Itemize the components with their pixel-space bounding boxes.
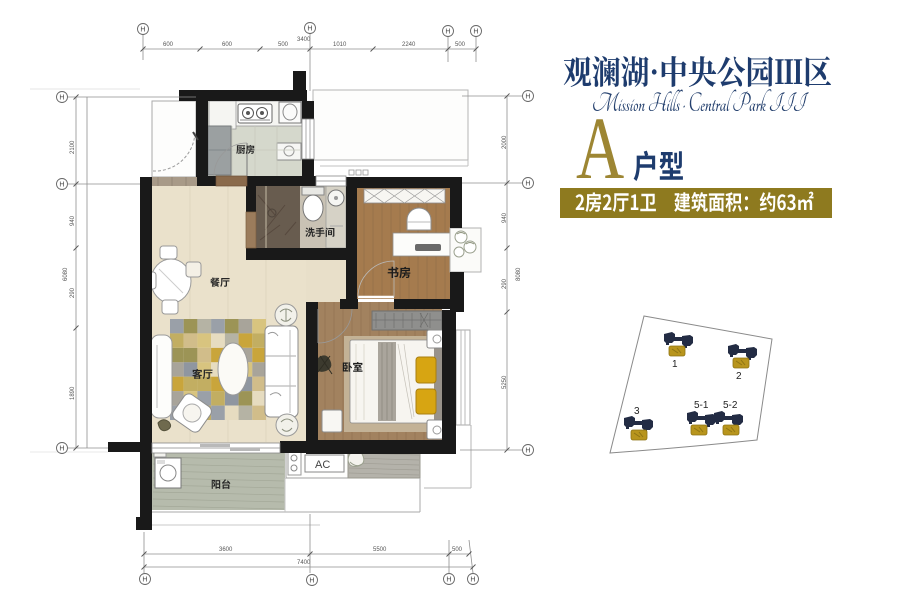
svg-text:1890: 1890 xyxy=(70,386,76,400)
svg-text:3: 3 xyxy=(634,406,640,417)
svg-text:1010: 1010 xyxy=(333,42,347,48)
svg-text:2240: 2240 xyxy=(402,42,416,48)
svg-text:6080: 6080 xyxy=(63,267,69,281)
svg-text:H: H xyxy=(525,93,530,100)
svg-text:7400: 7400 xyxy=(297,560,311,566)
svg-text:290: 290 xyxy=(502,278,508,289)
svg-text:940: 940 xyxy=(70,215,76,226)
svg-text:H: H xyxy=(473,28,478,35)
svg-text:500: 500 xyxy=(278,42,289,48)
svg-text:2100: 2100 xyxy=(70,140,76,154)
svg-text:5-2: 5-2 xyxy=(723,400,738,411)
svg-text:2000: 2000 xyxy=(502,135,508,149)
svg-text:H: H xyxy=(142,576,147,583)
svg-text:H: H xyxy=(59,94,64,101)
svg-text:H: H xyxy=(59,445,64,452)
svg-text:5250: 5250 xyxy=(502,375,508,389)
svg-text:H: H xyxy=(446,576,451,583)
svg-text:H: H xyxy=(307,25,312,32)
svg-text:AC: AC xyxy=(315,459,330,471)
svg-text:8080: 8080 xyxy=(516,267,522,281)
svg-text:H: H xyxy=(59,181,64,188)
svg-text:3400: 3400 xyxy=(297,37,311,43)
svg-text:H: H xyxy=(470,576,475,583)
svg-text:290: 290 xyxy=(70,287,76,298)
svg-text:5-1: 5-1 xyxy=(694,400,709,411)
svg-text:3600: 3600 xyxy=(219,547,233,553)
svg-text:600: 600 xyxy=(222,42,233,48)
svg-text:500: 500 xyxy=(452,547,463,553)
svg-text:H: H xyxy=(309,577,314,584)
svg-text:500: 500 xyxy=(455,42,466,48)
svg-text:5500: 5500 xyxy=(373,547,387,553)
svg-text:H: H xyxy=(525,447,530,454)
svg-text:H: H xyxy=(445,28,450,35)
svg-text:940: 940 xyxy=(502,212,508,223)
svg-text:H: H xyxy=(140,26,145,33)
svg-text:2: 2 xyxy=(736,371,742,382)
svg-text:H: H xyxy=(525,180,530,187)
svg-text:1: 1 xyxy=(672,359,678,370)
svg-text:600: 600 xyxy=(163,42,174,48)
